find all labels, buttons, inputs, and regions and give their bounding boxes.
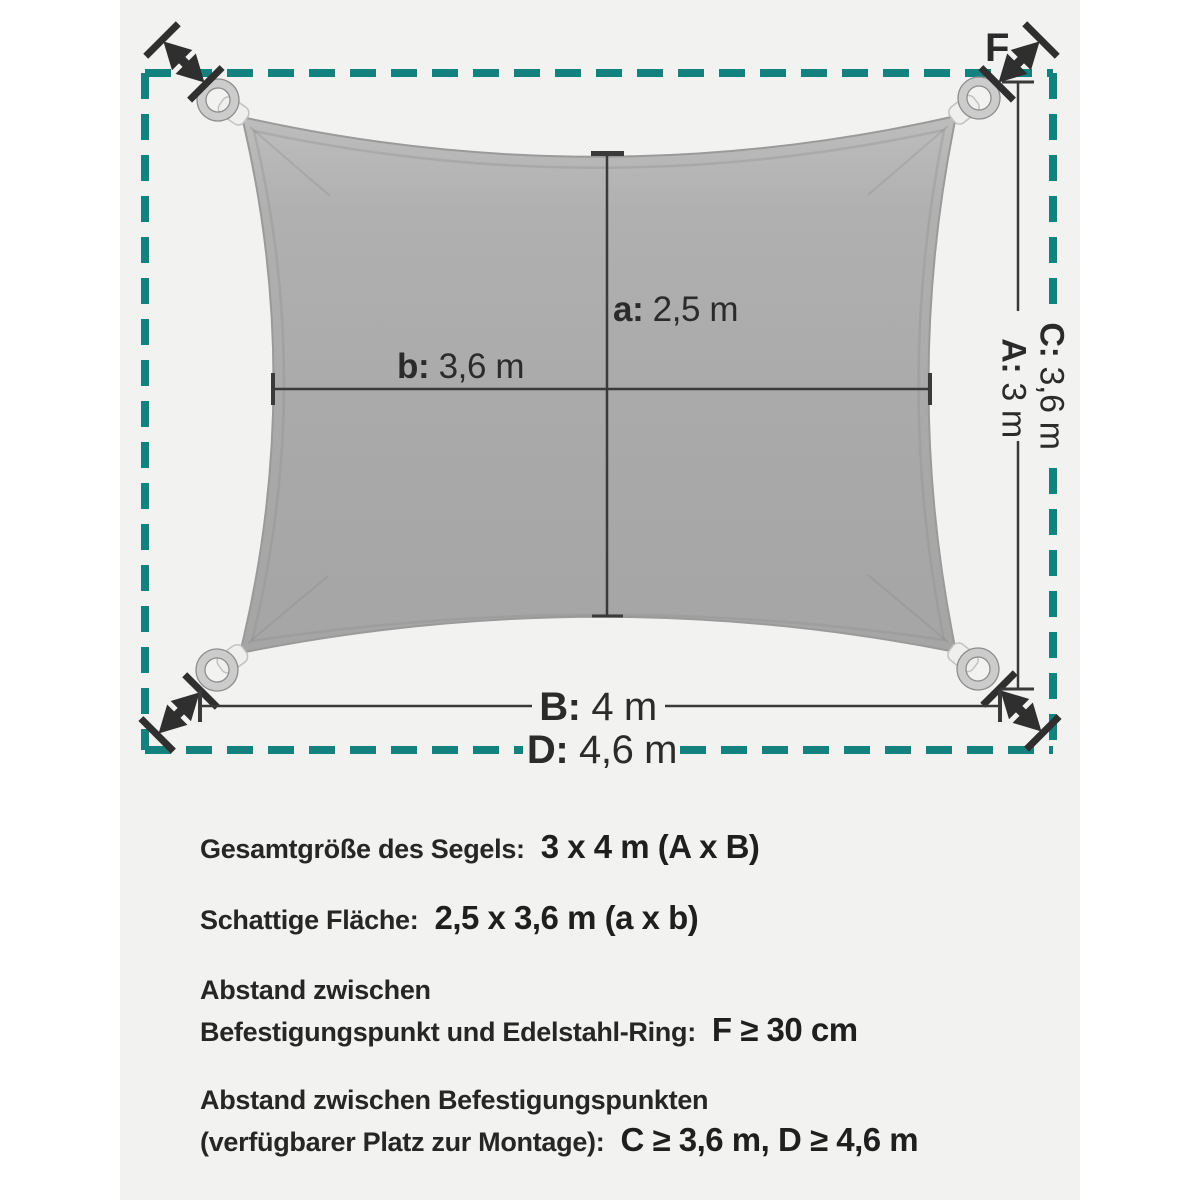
label-a: a: 2,5 m: [613, 290, 738, 330]
product-diagram: F a: 2,5 m b: 3,6 m C: 3,6 m A: 3 m B: 4…: [0, 0, 1200, 1200]
distance-arrow-bottom-right: [983, 673, 1059, 749]
label-d: D: 4,6 m: [527, 728, 677, 773]
label-b: b: 3,6 m: [397, 347, 524, 387]
spec-total-size: Gesamtgröße des Segels:3 x 4 m (A x B): [200, 827, 759, 874]
shade-sail-shape: [240, 116, 956, 653]
spec-mount-distance-line1: Abstand zwischen Befestigungspunkten: [200, 1080, 708, 1125]
label-b-bottom: B: 4 m: [539, 685, 657, 730]
spec-ring-distance-line1: Abstand zwischen: [200, 970, 431, 1015]
spec-ring-distance-line2: Befestigungspunkt und Edelstahl-Ring:F ≥…: [200, 1010, 858, 1057]
label-a-side: A: 3 m: [994, 338, 1033, 438]
label-f: F: [985, 26, 1009, 71]
label-c: C: 3,6 m: [1032, 322, 1071, 449]
spec-shaded-area: Schattige Fläche:2,5 x 3,6 m (a x b): [200, 898, 698, 945]
spec-mount-distance-line2: (verfügbarer Platz zur Montage):C ≥ 3,6 …: [200, 1120, 918, 1167]
